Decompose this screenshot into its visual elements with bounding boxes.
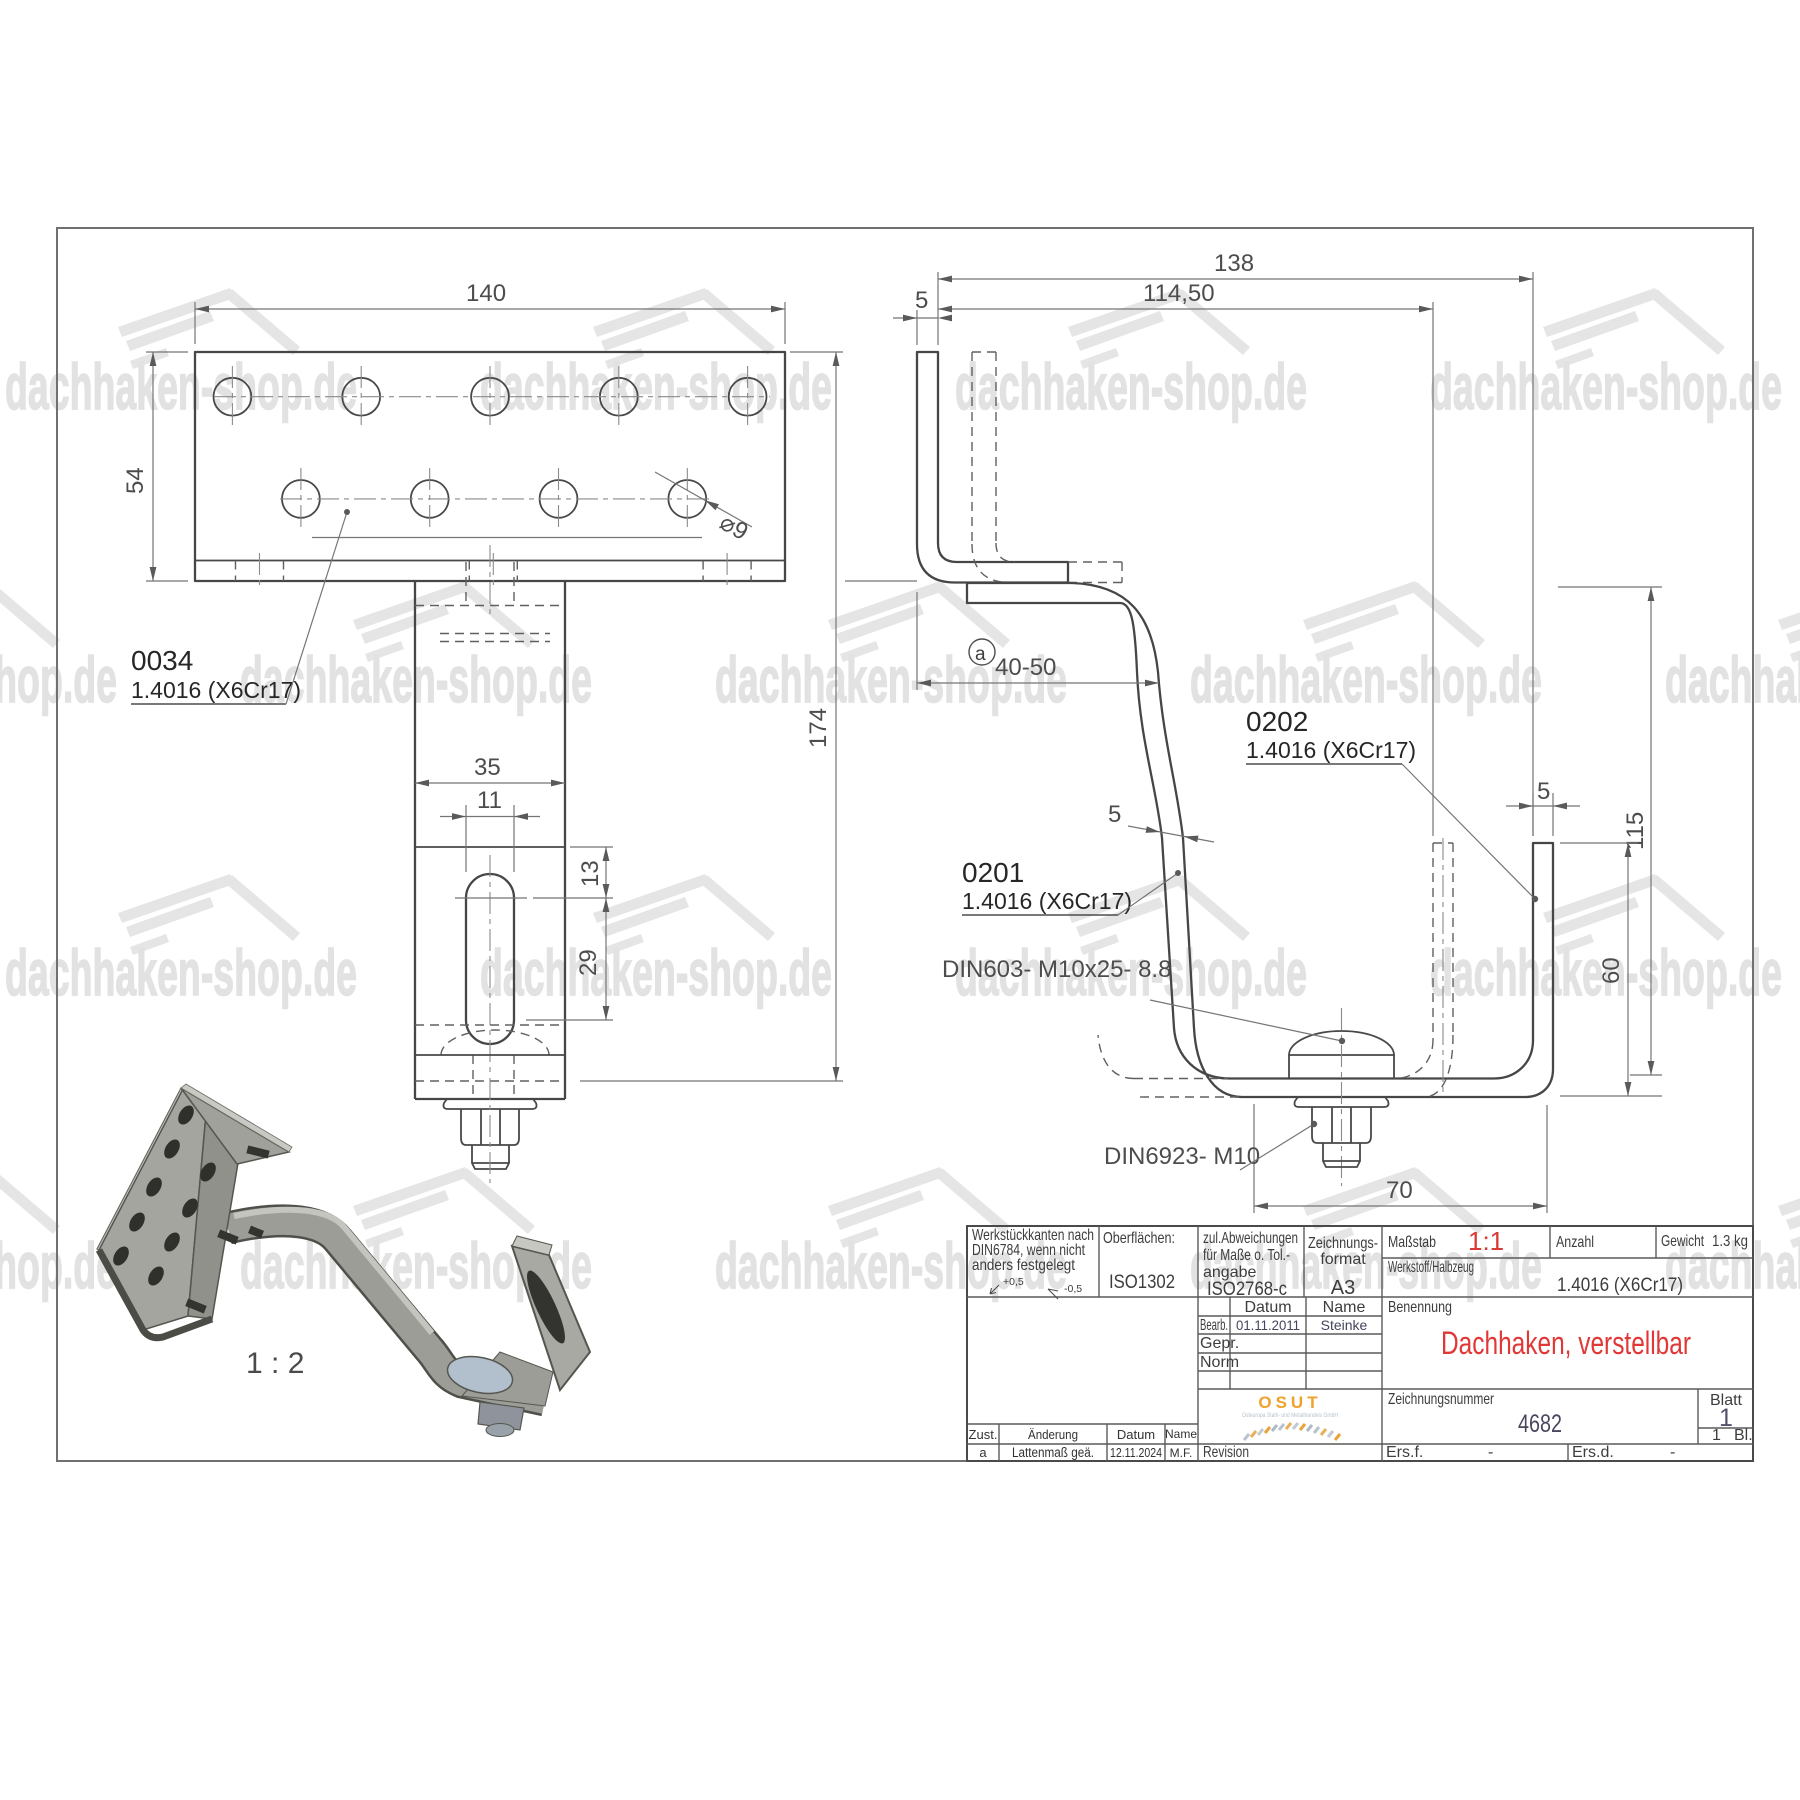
svg-text:29: 29	[575, 949, 602, 976]
svg-text:Anzahl: Anzahl	[1556, 1234, 1594, 1251]
svg-text:anders festgelegt: anders festgelegt	[972, 1257, 1075, 1274]
svg-text:+0,5: +0,5	[1003, 1276, 1024, 1288]
svg-text:Revision: Revision	[1203, 1444, 1249, 1461]
svg-text:dachhaken-shop.de: dachhaken-shop.de	[955, 350, 1307, 423]
svg-text:1: 1	[1719, 1404, 1733, 1432]
svg-text:1.4016 (X6Cr17): 1.4016 (X6Cr17)	[962, 888, 1132, 914]
svg-text:⌀9: ⌀9	[715, 509, 752, 546]
svg-text:-: -	[1488, 1444, 1493, 1461]
svg-text:114,50: 114,50	[1143, 280, 1215, 307]
svg-text:Ers.f.: Ers.f.	[1386, 1444, 1423, 1461]
svg-text:dachhaken-shop.de: dachhaken-shop.de	[0, 643, 117, 716]
svg-text:Steinke: Steinke	[1321, 1317, 1368, 1333]
svg-text:115: 115	[1622, 812, 1649, 850]
svg-text:a: a	[975, 644, 986, 665]
svg-text:54: 54	[122, 467, 149, 494]
svg-text:a: a	[979, 1445, 987, 1460]
svg-text:0201: 0201	[962, 857, 1024, 888]
svg-text:dachhaken-shop.de: dachhaken-shop.de	[1430, 350, 1782, 423]
svg-text:1 : 2: 1 : 2	[246, 1347, 304, 1380]
svg-text:11: 11	[477, 787, 502, 814]
svg-text:Bl.: Bl.	[1734, 1427, 1753, 1444]
svg-text:zul.Abweichungen: zul.Abweichungen	[1203, 1230, 1298, 1247]
svg-text:Änderung: Änderung	[1028, 1427, 1078, 1442]
svg-text:Name: Name	[1323, 1299, 1366, 1316]
svg-text:für Maße o. Tol.-: für Maße o. Tol.-	[1203, 1247, 1290, 1264]
svg-text:M.F.: M.F.	[1170, 1446, 1193, 1460]
svg-text:dachhaken-shop.de: dachhaken-shop.de	[0, 1229, 117, 1302]
svg-text:dachhaken-shop.de: dachhaken-shop.de	[480, 350, 832, 423]
svg-text:Gewicht: Gewicht	[1661, 1233, 1704, 1250]
svg-text:Benennung: Benennung	[1388, 1299, 1452, 1316]
svg-text:Bearb.: Bearb.	[1200, 1317, 1228, 1334]
svg-text:Lattenmaß geä.: Lattenmaß geä.	[1012, 1445, 1094, 1460]
svg-text:ISO2768-c: ISO2768-c	[1207, 1279, 1287, 1300]
svg-text:A3: A3	[1331, 1277, 1355, 1299]
svg-text:dachhaken-shop.de: dachhaken-shop.de	[1190, 643, 1542, 716]
svg-text:5: 5	[915, 287, 928, 314]
svg-text:174: 174	[805, 708, 832, 748]
svg-text:4682: 4682	[1518, 1410, 1562, 1438]
svg-text:1.4016 (X6Cr17): 1.4016 (X6Cr17)	[1557, 1275, 1683, 1296]
svg-text:dachhaken-shop.de: dachhaken-shop.de	[1665, 643, 1800, 716]
svg-text:Zeichnungsnummer: Zeichnungsnummer	[1388, 1391, 1494, 1408]
svg-text:Osteuropa Stahl- und Metallhan: Osteuropa Stahl- und Metallhandels GmbH	[1242, 1412, 1338, 1419]
svg-text:Name: Name	[1165, 1427, 1197, 1441]
svg-text:1.3 kg: 1.3 kg	[1712, 1233, 1748, 1250]
svg-text:Maßstab: Maßstab	[1388, 1234, 1436, 1251]
svg-text:1: 1	[1712, 1427, 1721, 1444]
svg-text:Oberflächen:: Oberflächen:	[1103, 1230, 1175, 1247]
svg-text:dachhaken-shop.de: dachhaken-shop.de	[480, 936, 832, 1009]
svg-text:1.4016 (X6Cr17): 1.4016 (X6Cr17)	[131, 677, 301, 703]
svg-text:70: 70	[1386, 1177, 1413, 1204]
svg-text:5: 5	[1537, 778, 1550, 805]
svg-text:Dachhaken, verstellbar: Dachhaken, verstellbar	[1441, 1325, 1691, 1361]
svg-text:5: 5	[1108, 801, 1121, 828]
svg-text:Zeichnungs-: Zeichnungs-	[1308, 1235, 1378, 1252]
svg-text:-0,5: -0,5	[1064, 1283, 1082, 1295]
svg-text:Datum: Datum	[1244, 1299, 1291, 1316]
svg-text:01.11.2011: 01.11.2011	[1236, 1317, 1300, 1333]
svg-text:35: 35	[474, 754, 501, 781]
svg-text:Datum: Datum	[1117, 1427, 1155, 1442]
svg-text:40-50: 40-50	[995, 654, 1056, 681]
svg-text:DIN603- M10x25- 8.8: DIN603- M10x25- 8.8	[942, 956, 1171, 983]
svg-text:138: 138	[1214, 250, 1254, 277]
svg-text:format: format	[1320, 1251, 1366, 1268]
svg-text:1.4016 (X6Cr17): 1.4016 (X6Cr17)	[1246, 737, 1416, 763]
svg-text:Norm: Norm	[1200, 1354, 1239, 1371]
svg-text:60: 60	[1598, 957, 1625, 984]
svg-text:ISO1302: ISO1302	[1109, 1272, 1175, 1293]
svg-text:-: -	[1670, 1444, 1675, 1461]
svg-text:1:1: 1:1	[1468, 1226, 1504, 1256]
svg-text:OSUT: OSUT	[1258, 1393, 1321, 1412]
svg-text:Gepr.: Gepr.	[1200, 1335, 1239, 1352]
svg-text:12.11.2024: 12.11.2024	[1110, 1445, 1162, 1460]
svg-text:13: 13	[577, 860, 604, 887]
svg-text:DIN6923- M10: DIN6923- M10	[1104, 1143, 1260, 1170]
svg-text:0202: 0202	[1246, 706, 1308, 737]
svg-text:140: 140	[466, 280, 506, 307]
svg-text:Ers.d.: Ers.d.	[1572, 1444, 1614, 1461]
svg-text:Zust.: Zust.	[969, 1427, 998, 1442]
svg-text:0034: 0034	[131, 645, 193, 676]
svg-text:Werkstoff/Halbzeug: Werkstoff/Halbzeug	[1388, 1259, 1474, 1276]
